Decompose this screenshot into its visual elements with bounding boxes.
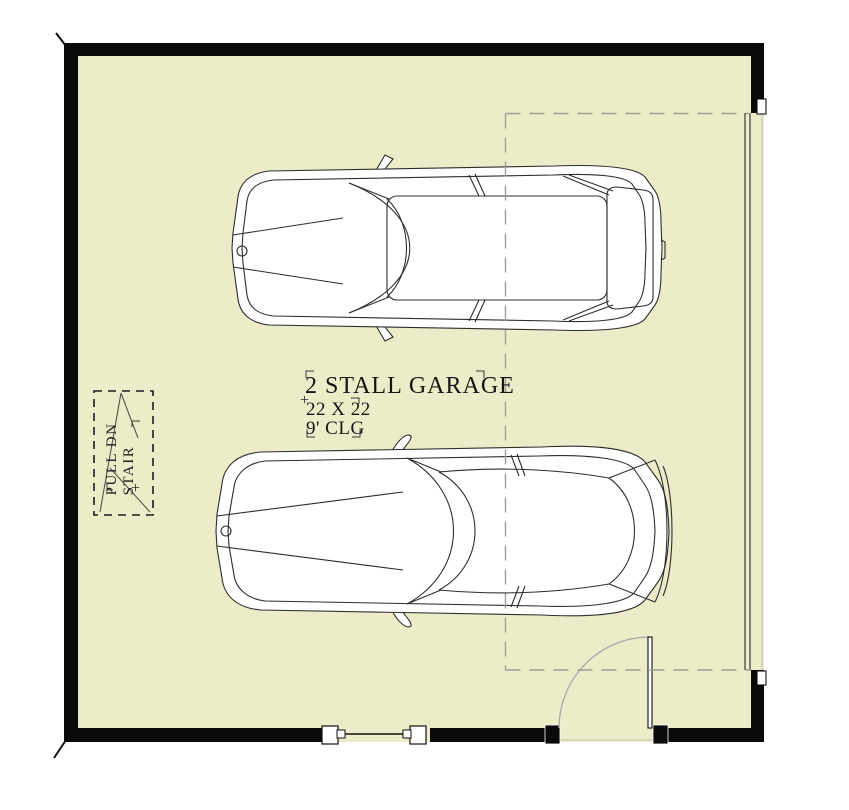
text-insertion-marker: + [300, 392, 309, 410]
ceiling-height-label: 9' CLG [306, 418, 365, 440]
corner-tick-bottom-left [54, 740, 66, 758]
window-jamb-right [410, 726, 426, 744]
corner-tick-top-left [56, 33, 66, 46]
room-title: 2 STALL GARAGE [305, 373, 515, 400]
door-jamb-left [545, 725, 560, 744]
wall-top [64, 43, 764, 56]
stair-insertion-marker: + [131, 480, 140, 498]
garage-door-jamb-bottom [757, 671, 766, 685]
wall-bottom-right-segment [668, 728, 764, 742]
wall-bottom-mid-segment [430, 728, 546, 742]
door-jamb-right [653, 725, 668, 744]
window-jamb-left [322, 726, 338, 744]
floor-plan-drawing [0, 0, 849, 810]
car-top-view-1 [232, 155, 665, 341]
floor-plan-page: 2 STALL GARAGE 22 X 22 9' CLG + PULL DN … [0, 0, 849, 810]
window-frame-left [337, 730, 345, 738]
wall-left [64, 43, 78, 742]
stair-label-line1: PULL DN [104, 423, 121, 496]
car-top-view-2 [216, 435, 672, 627]
garage-door-jamb-top [757, 99, 766, 114]
wall-bottom-left-segment [64, 728, 323, 742]
window-frame-right [403, 730, 411, 738]
door-leaf [648, 637, 652, 728]
